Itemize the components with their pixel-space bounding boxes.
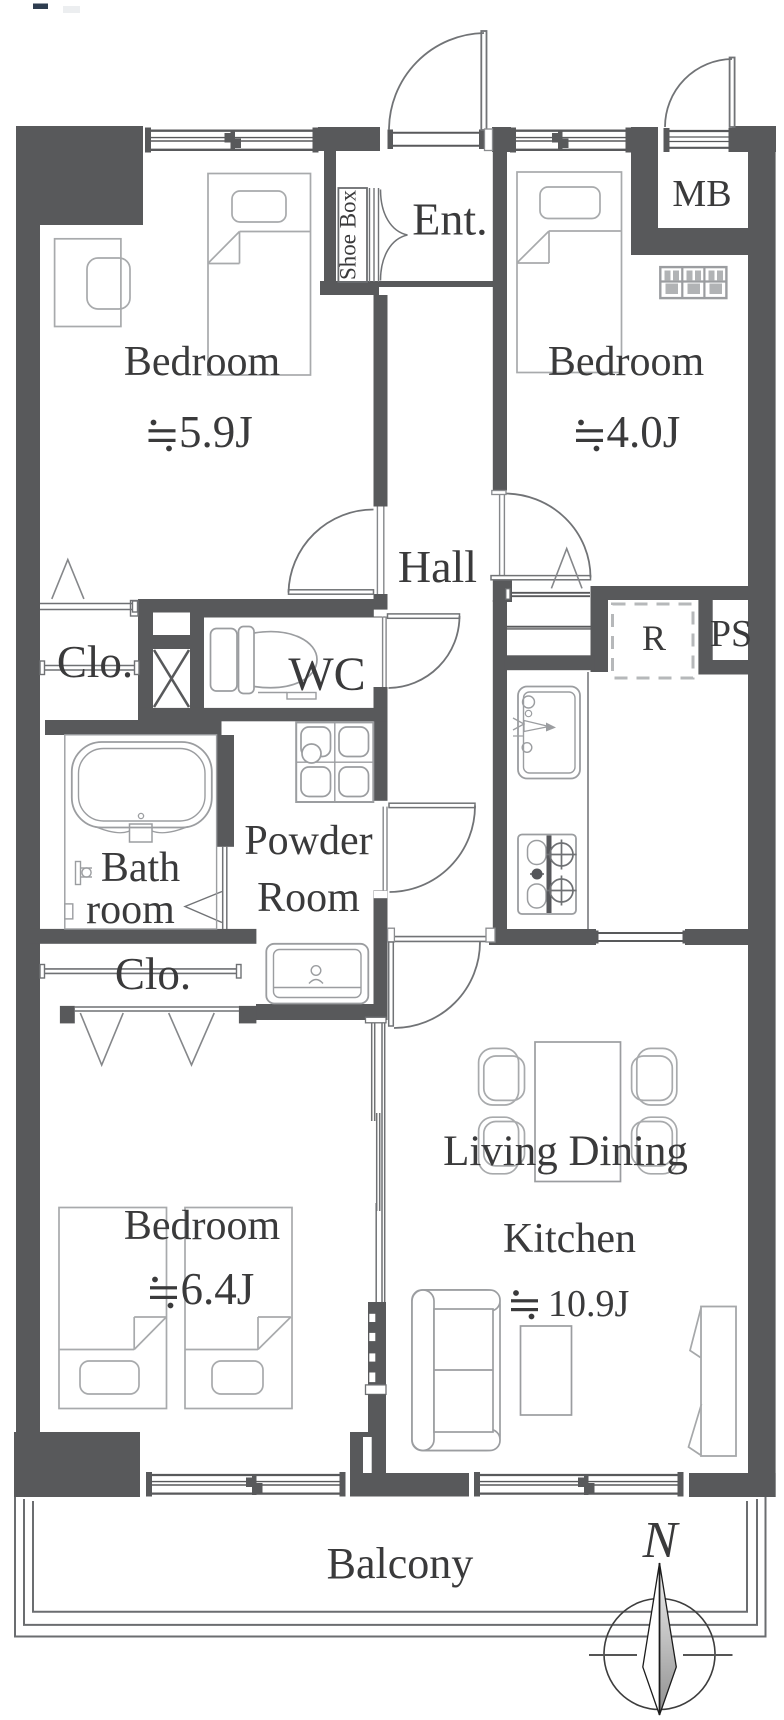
svg-text:WC: WC xyxy=(288,648,365,701)
svg-text:Kitchen: Kitchen xyxy=(503,1216,636,1262)
svg-text:Bedroom: Bedroom xyxy=(124,339,281,385)
svg-text:Bedroom: Bedroom xyxy=(124,1203,281,1249)
svg-text:4.0J: 4.0J xyxy=(607,407,681,457)
svg-text:5.9J: 5.9J xyxy=(179,407,253,457)
svg-text:room: room xyxy=(86,887,175,933)
svg-text:N: N xyxy=(642,1512,681,1569)
svg-text:Room: Room xyxy=(257,875,360,921)
svg-text:Clo.: Clo. xyxy=(57,637,133,687)
svg-text:Living Dining: Living Dining xyxy=(443,1128,688,1175)
svg-text:10.9J: 10.9J xyxy=(548,1283,629,1325)
svg-text:Balcony: Balcony xyxy=(327,1539,474,1588)
svg-text:Hall: Hall xyxy=(398,541,477,592)
svg-text:R: R xyxy=(642,618,666,658)
svg-text:PS: PS xyxy=(710,613,752,655)
svg-text:Bath: Bath xyxy=(101,845,180,891)
svg-text:Shoe Box: Shoe Box xyxy=(336,189,361,280)
svg-text:Powder: Powder xyxy=(244,818,372,864)
svg-text:MB: MB xyxy=(672,173,731,215)
svg-text:Clo.: Clo. xyxy=(115,949,191,999)
svg-text:Bedroom: Bedroom xyxy=(548,339,705,385)
svg-text:Ent.: Ent. xyxy=(412,194,487,245)
svg-text:6.4J: 6.4J xyxy=(181,1264,255,1314)
